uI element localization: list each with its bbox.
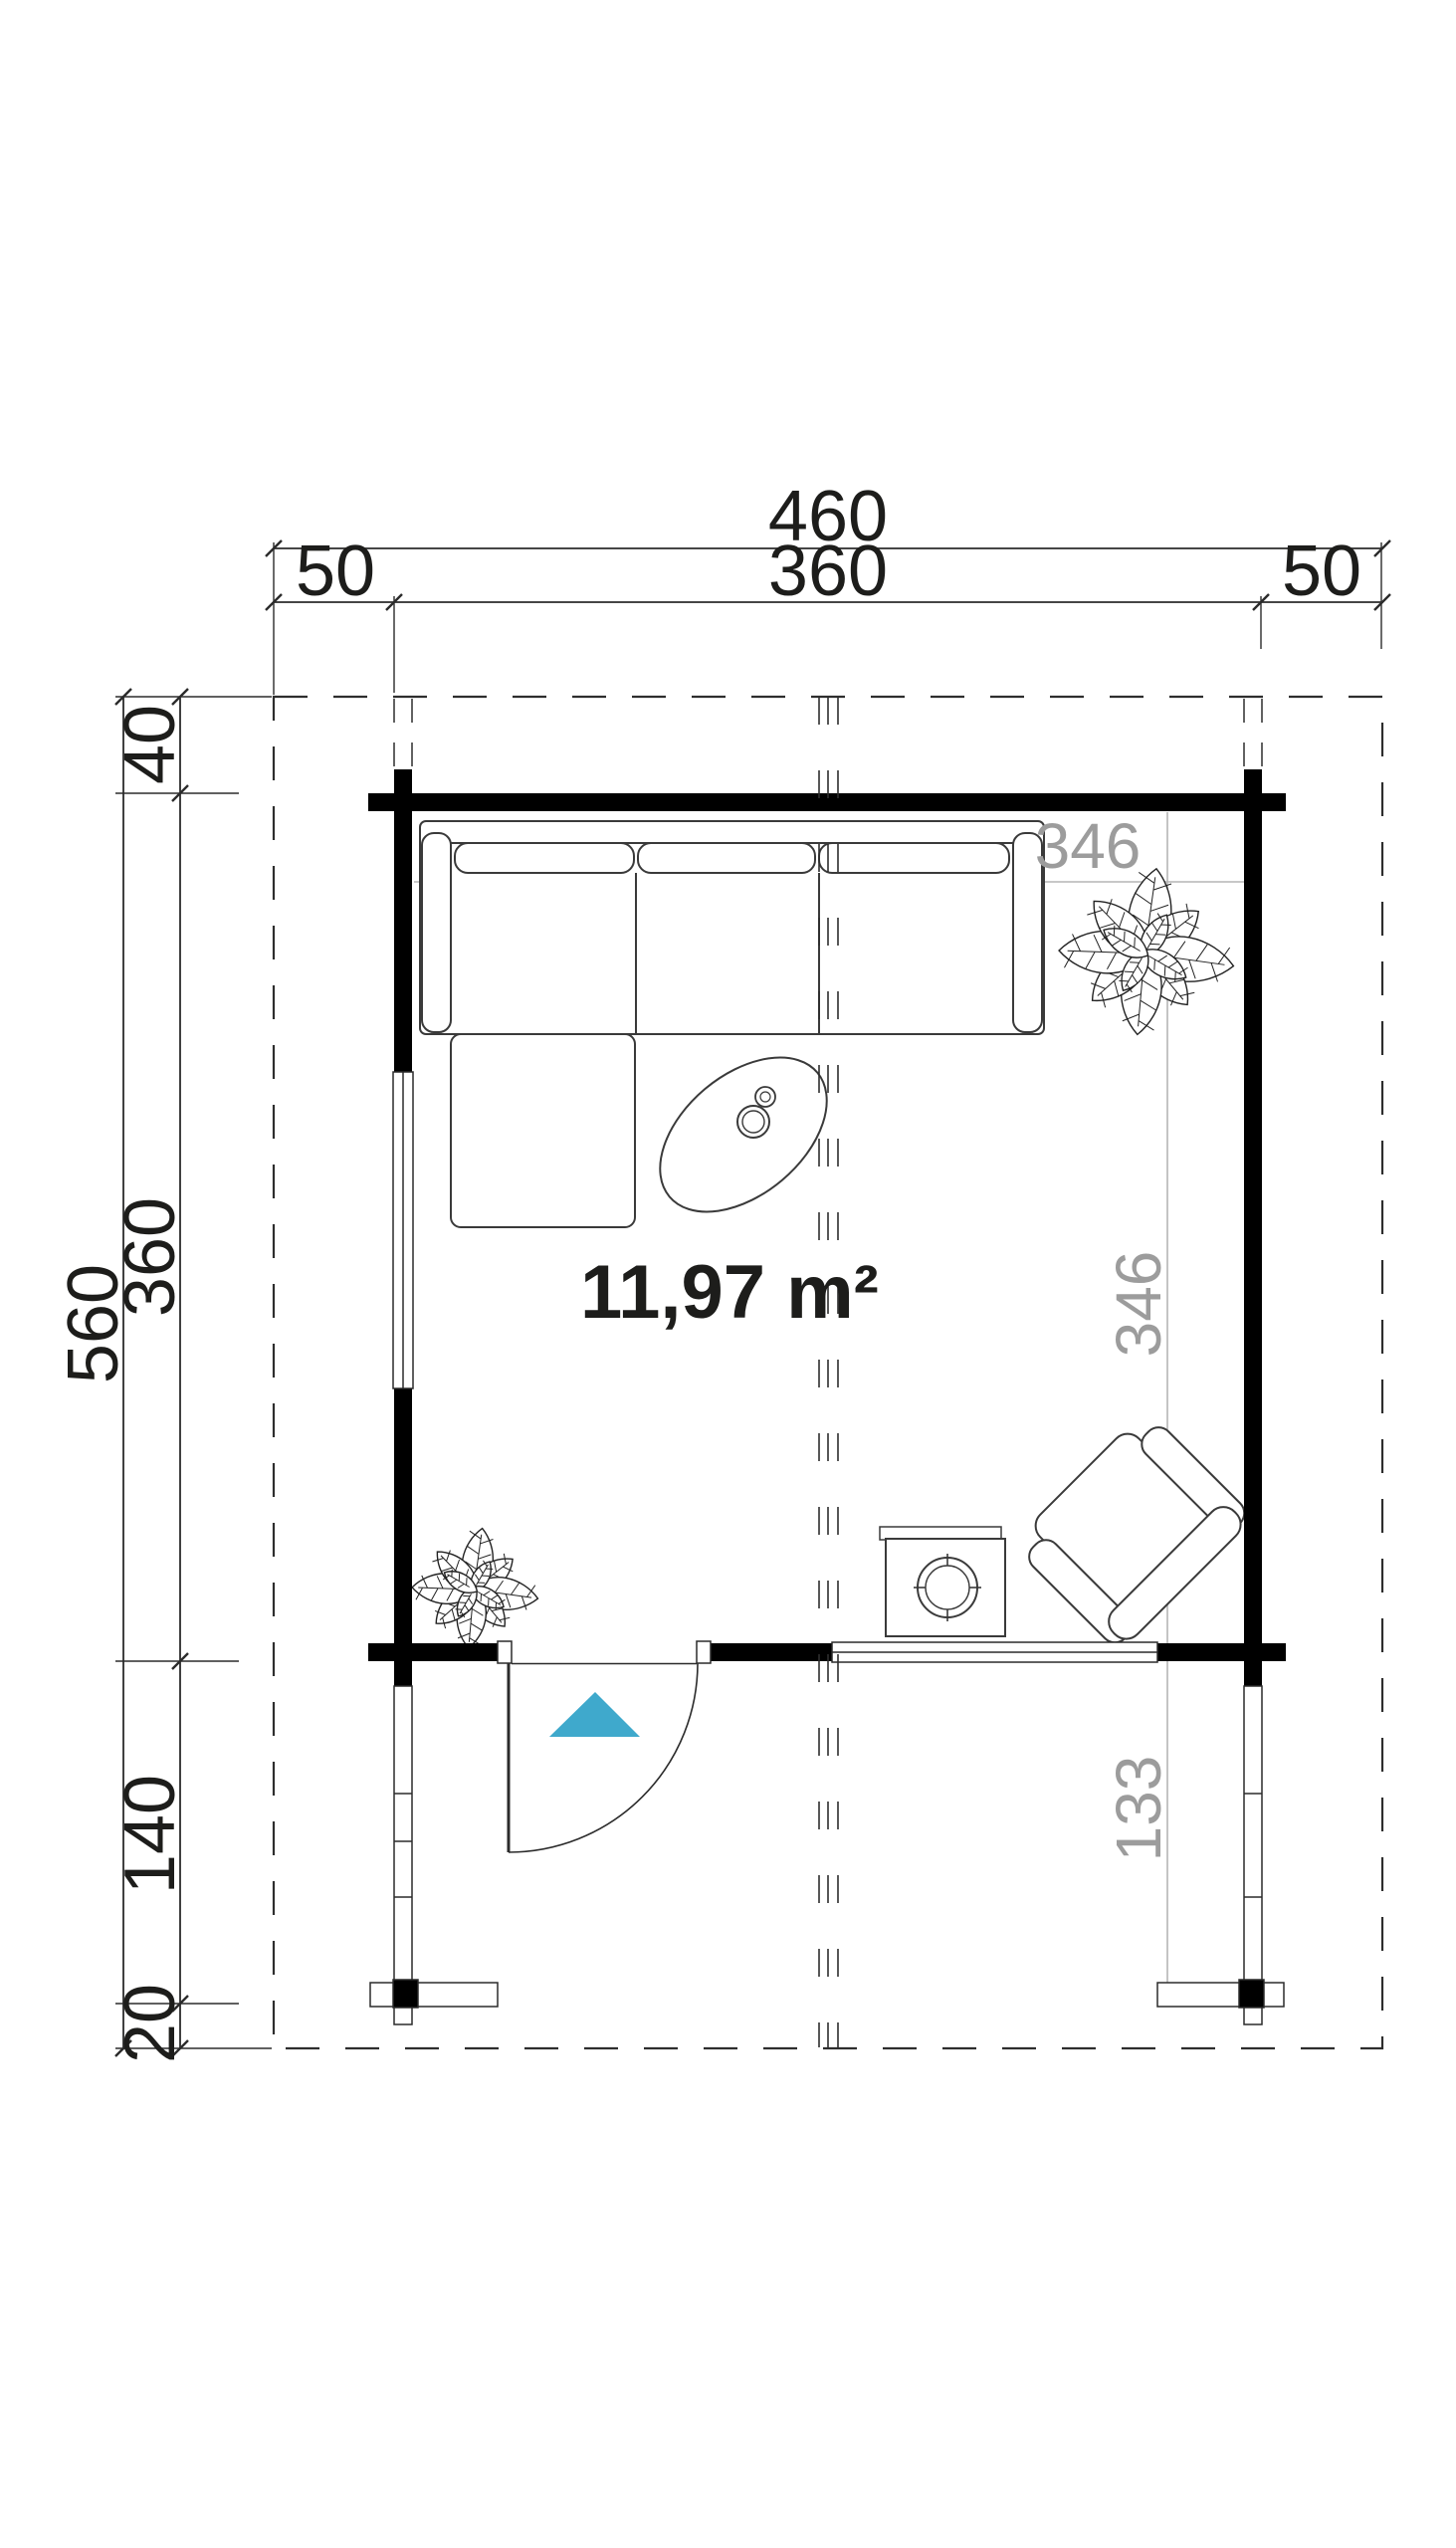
door-jamb-left: [498, 1641, 512, 1663]
wall-bottom-right: [1157, 1643, 1286, 1661]
wall-bottom-mid: [711, 1643, 832, 1661]
porch-post-strip-right: [1244, 1686, 1262, 2024]
porch-post-strip-left: [394, 1686, 412, 2024]
porch-post-right: [1239, 1980, 1264, 2008]
plant-icon: [412, 1526, 540, 1648]
door-jamb-right: [697, 1641, 711, 1663]
stove: [880, 1527, 1005, 1636]
dim-overhang-bottom: 20: [110, 1984, 190, 2063]
plant-icon: [1058, 866, 1236, 1036]
dim-overhang-right: 50: [1282, 531, 1361, 611]
entrance-door: [498, 1641, 711, 1852]
floor-plan-canvas: 460 50 360 50 560 40 360 140 20 346 346 …: [0, 0, 1456, 2548]
dim-wall-width: 360: [768, 531, 888, 611]
dim-wall-depth: 360: [110, 1197, 190, 1317]
dim-overhang-left: 50: [296, 531, 375, 611]
porch-beam-right: [1157, 1983, 1284, 2007]
sofa-back-cushion: [819, 843, 1009, 873]
sofa-back-cushion: [638, 843, 815, 873]
armchair: [1011, 1409, 1255, 1653]
dim-overhang-top: 40: [110, 705, 190, 784]
entrance-arrow: [549, 1692, 640, 1737]
coffee-table: [631, 1027, 856, 1243]
door-swing-arc: [509, 1663, 698, 1852]
interior-width-label: 346: [1035, 810, 1142, 882]
dim-porch-depth: 140: [110, 1775, 190, 1894]
sofa-armrest-left: [422, 833, 451, 1032]
porch-interior-depth-label: 133: [1103, 1756, 1174, 1862]
dimension-labels: 460 50 360 50 560 40 360 140 20 346 346 …: [54, 477, 1361, 2063]
interior-depth-label: 346: [1103, 1251, 1174, 1358]
porch-post-left: [393, 1980, 418, 2008]
wall-top: [368, 793, 1286, 811]
wall-bottom-left: [368, 1643, 498, 1661]
room-area-label: 11,97 m²: [580, 1250, 879, 1335]
wall-right: [1244, 769, 1262, 1686]
floor-plan-page: 460 50 360 50 560 40 360 140 20 346 346 …: [0, 0, 1456, 2548]
wall-left-upper: [394, 769, 412, 1072]
sofa-back-cushion: [455, 843, 634, 873]
porch-beam-left: [370, 1983, 498, 2007]
sofa-chaise: [451, 1034, 635, 1227]
wall-left-lower: [394, 1388, 412, 1686]
